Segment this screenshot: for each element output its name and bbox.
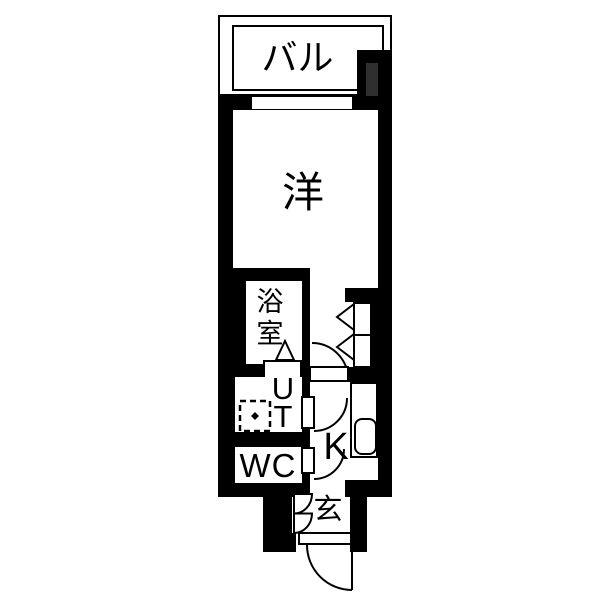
utility-label-char2: T bbox=[268, 403, 298, 431]
entrance-door-arc bbox=[307, 545, 352, 590]
balcony-label: バル bbox=[235, 40, 360, 76]
bathroom-label: 浴 室 bbox=[256, 287, 284, 351]
symbol-overlay bbox=[0, 0, 600, 600]
utility-label: U T bbox=[268, 375, 298, 431]
bathroom-label-char2: 室 bbox=[256, 319, 284, 351]
floorplan-canvas: バル 洋 浴 室 U T WC K 玄 bbox=[0, 0, 600, 600]
entrance-cabinet-door-top bbox=[294, 494, 312, 514]
entrance-cabinet-door-bottom bbox=[294, 514, 312, 534]
kitchen-label: K bbox=[318, 428, 354, 466]
closet-door-triangle-top bbox=[337, 304, 354, 330]
entrance-label: 玄 bbox=[312, 496, 344, 525]
bathroom-label-char1: 浴 bbox=[256, 287, 284, 319]
utility-door-leaf bbox=[302, 397, 314, 428]
hall-door-leaf bbox=[310, 367, 348, 381]
wc-door-leaf bbox=[302, 448, 314, 473]
washer-center-diamond bbox=[251, 412, 259, 420]
western-room-label: 洋 bbox=[281, 172, 325, 214]
wc-label: WC bbox=[237, 449, 299, 482]
